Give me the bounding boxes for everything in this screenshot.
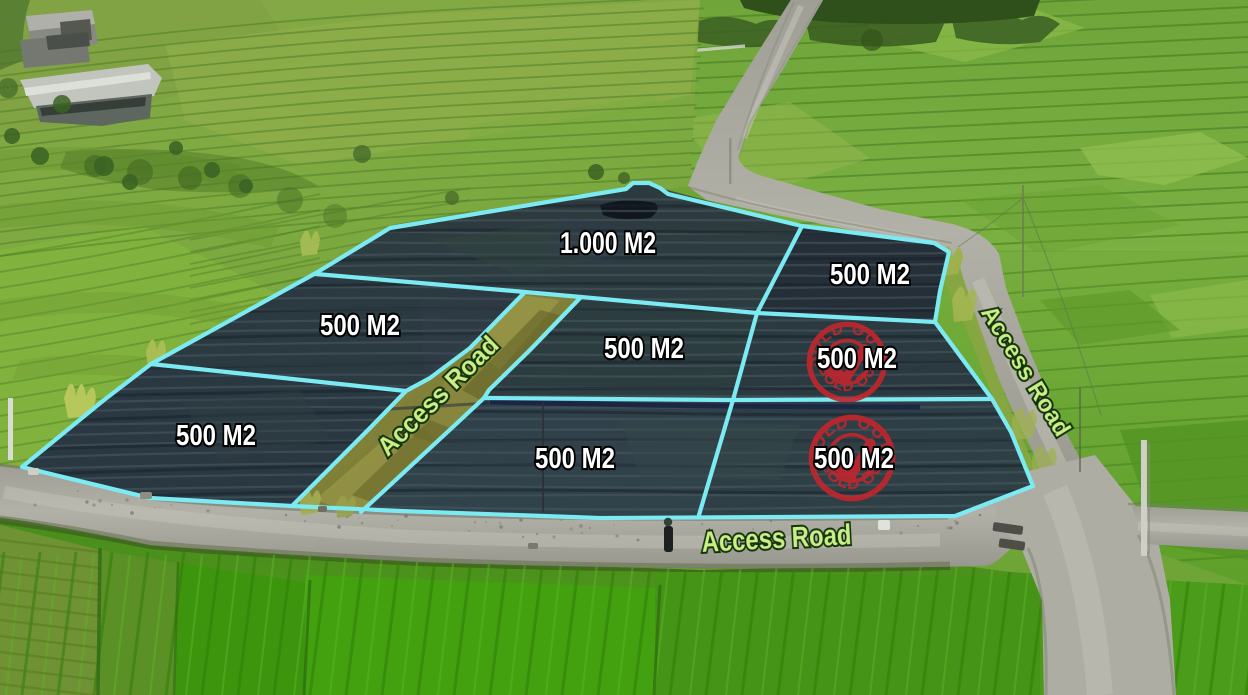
- svg-text:500 M2: 500 M2: [817, 343, 897, 375]
- svg-text:500 M2: 500 M2: [320, 310, 400, 342]
- svg-text:1.000 M2: 1.000 M2: [560, 227, 656, 260]
- svg-text:500 M2: 500 M2: [176, 420, 256, 452]
- svg-text:500 M2: 500 M2: [830, 259, 910, 291]
- svg-text:500 M2: 500 M2: [814, 443, 894, 475]
- svg-text:500 M2: 500 M2: [535, 443, 615, 475]
- svg-text:500 M2: 500 M2: [604, 333, 684, 365]
